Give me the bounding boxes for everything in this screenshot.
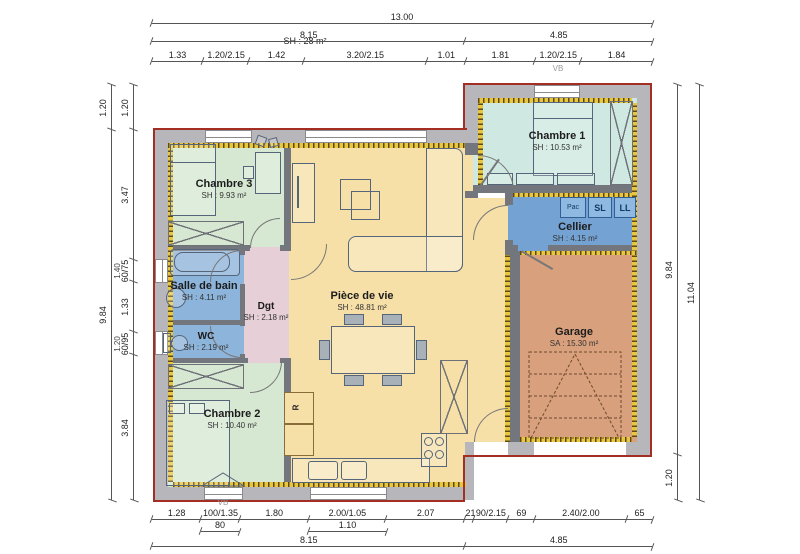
dim-label: 21 <box>465 508 473 518</box>
partition-sdb-wc <box>162 320 240 325</box>
dining-table <box>331 326 415 374</box>
dim-segment: 1.81 <box>466 48 536 62</box>
dim-label: 8.15 <box>152 30 465 40</box>
kitchen-sink-a <box>308 461 338 480</box>
wall-step-top <box>465 85 478 143</box>
dim-label: 1.42 <box>249 50 304 60</box>
dim-label: 4.85 <box>465 535 652 545</box>
dim-segment: 1.33 <box>152 48 203 62</box>
sofa-horizontal <box>348 236 463 272</box>
entry-door-opening <box>474 442 508 455</box>
dim-segment: 1.20/2.15 <box>535 48 581 62</box>
dim-segment: 1.80 <box>240 506 309 520</box>
label-chambre3: Chambre 3 SH : 9.93 m² <box>169 178 279 200</box>
bed-chambre1-pillow-line <box>534 118 592 119</box>
room-area: SH : 2.18 m² <box>236 313 296 322</box>
wardrobe-chambre3 <box>168 221 244 246</box>
dim-segment: 1.28 <box>152 506 201 520</box>
floor-plan-canvas: R Pac SL LL Chambre 3 SH : 9.93 m² Chamb… <box>0 0 800 554</box>
dim-label: 65 <box>627 508 652 518</box>
kitchen-tall-cabinet <box>440 360 468 434</box>
dining-chair-bottom-b <box>382 375 402 386</box>
window-chambre1-top <box>534 85 580 98</box>
dim-segment: 1.01 <box>427 48 466 62</box>
dresser-chambre1-c <box>557 173 595 185</box>
dim-label: 1.80 <box>240 508 309 518</box>
room-area: SH : 2.19 m² <box>151 343 261 352</box>
dim-label: 1.84 <box>581 50 652 60</box>
dim-row-bottom-sub-110: 1.10 <box>309 518 386 532</box>
dim-segment: 3.20/2.15 <box>304 48 427 62</box>
label-piece-de-vie: Pièce de vie SH : 48.81 m² <box>307 290 417 312</box>
dim-label: 9.84 <box>664 261 674 279</box>
window-living-bay <box>305 130 427 143</box>
insulation-garage-top <box>520 251 637 255</box>
dim-row-bottom-sections: 8.15 4.85 <box>152 533 652 547</box>
wardrobe-chambre1 <box>610 101 633 185</box>
dim-segment: 8.15 <box>152 28 465 42</box>
dim-label: 1.20 <box>98 99 108 117</box>
bed-chambre3-pillow-line <box>171 162 215 163</box>
label-dgt: Dgt SH : 2.18 m² <box>236 301 296 322</box>
dim-segment: 3.84 <box>118 355 134 500</box>
dining-chair-top-b <box>382 314 402 325</box>
dim-row-top-details: 1.33 1.20/2.15 1.42 3.20/2.15 1.01 1.81 … <box>152 48 652 62</box>
dining-chair-left <box>319 340 330 360</box>
appliance-pac: Pac <box>560 197 586 218</box>
label-cellier: Cellier SH : 4.15 m² <box>520 221 630 243</box>
dim-label: 8.15 <box>152 535 465 545</box>
dim-segment: 1.33 <box>118 282 134 332</box>
dim-segment: 4.85 <box>465 28 652 42</box>
partition-cellier-left-a <box>505 193 513 205</box>
label-wc: WC SH : 2.19 m² <box>151 331 261 352</box>
dim-segment: 9.84 <box>662 85 678 455</box>
dim-sublabel: 1.40 <box>113 263 122 279</box>
room-name: Pièce de vie <box>307 290 417 303</box>
dim-col-left-inner: 1.20 3.47 60/751.40 1.33 60/951.20 3.84 <box>118 85 134 500</box>
dresser-chambre1-b <box>516 173 554 185</box>
room-name: Salle de bain <box>149 280 259 293</box>
partition-wc-bottom <box>162 358 248 363</box>
dim-segment: 1.20/2.15 <box>203 48 249 62</box>
dim-segment: 2.40/2.00 <box>535 506 627 520</box>
dim-label: 1.33 <box>120 298 130 316</box>
dim-label: 2.40/2.00 <box>535 508 627 518</box>
dim-col-left-outer: 1.20 9.84 <box>96 85 112 500</box>
dim-label: 1.28 <box>152 508 201 518</box>
garage-door-icon <box>527 350 623 440</box>
room-name: Cellier <box>520 221 630 234</box>
appliance-sl-label: SL <box>594 203 606 213</box>
dim-segment: 60/951.20 <box>118 332 134 355</box>
label-garage: Garage SA : 15.30 m² <box>519 326 629 348</box>
dim-segment: 1.10 <box>309 518 386 532</box>
outline-notch <box>463 455 465 502</box>
tv-unit <box>292 163 315 223</box>
dim-label: 1.20/2.15 <box>535 50 581 60</box>
dim-row-top-sections: 8.15 4.85 <box>152 28 652 42</box>
dim-label: 1.20/2.15 <box>203 50 249 60</box>
partition-chambre1-left-a <box>465 143 478 155</box>
dim-segment: 60/751.40 <box>118 260 134 282</box>
kitchen-sink-b <box>341 461 367 480</box>
label-sdb: Salle de bain SH : 4.11 m² <box>149 280 259 302</box>
dim-segment: 13.00 <box>152 10 652 24</box>
dim-segment: 65 <box>627 506 652 520</box>
dim-sublabel: 1.20 <box>113 336 122 352</box>
hob-burner-2 <box>435 437 444 446</box>
tv-screen <box>297 176 299 208</box>
dim-segment: 9.84 <box>96 130 112 500</box>
dim-segment: 1.84 <box>581 48 652 62</box>
hob-burner-1 <box>424 437 433 446</box>
dim-label: 3.84 <box>120 419 130 437</box>
dim-row-top-total: 13.00 <box>152 10 652 24</box>
dim-label: 3.20/2.15 <box>304 50 427 60</box>
hob-burner-3 <box>424 450 433 459</box>
dim-label: 90/2.15 <box>474 508 509 518</box>
dining-chair-bottom-a <box>344 375 364 386</box>
dim-segment: 8.15 <box>152 533 465 547</box>
coffee-table-b <box>351 191 380 220</box>
room-name: WC <box>151 331 261 343</box>
fridge-label: R <box>291 405 300 411</box>
dining-chair-right <box>416 340 427 360</box>
dim-label: 1.01 <box>427 50 466 60</box>
room-name: Dgt <box>236 301 296 313</box>
outline-step-top <box>463 85 465 130</box>
dim-label: 1.20 <box>120 99 130 117</box>
kitchen-cabinet-low <box>284 424 314 456</box>
dim-label: 80 <box>201 520 239 530</box>
dim-segment: 2.07 <box>386 506 466 520</box>
dim-col-right-outer: 11.04 <box>684 85 700 500</box>
dining-chair-top-a <box>344 314 364 325</box>
dim-label: 2.00/1.05 <box>309 508 386 518</box>
garage-door-opening <box>534 442 626 455</box>
dim-label: 3.47 <box>120 186 130 204</box>
dim-segment: 69 <box>508 506 535 520</box>
dim-segment: 11.04 <box>684 85 700 500</box>
room-area: SH : 48.81 m² <box>307 303 417 312</box>
outline-bottom-left <box>153 500 465 502</box>
dim-label: 1.33 <box>152 50 203 60</box>
window-chambre3-top <box>205 130 252 143</box>
dim-segment: 80 <box>201 518 239 532</box>
dim-label: 2.07 <box>386 508 466 518</box>
room-name: Chambre 2 <box>177 408 287 421</box>
room-area: SH : 9.93 m² <box>169 191 279 200</box>
dim-label: 9.84 <box>98 306 108 324</box>
hob-burner-4 <box>435 450 444 459</box>
wardrobe-chambre2 <box>168 364 244 389</box>
dim-segment: 3.47 <box>118 130 134 260</box>
dim-segment: 4.85 <box>465 533 652 547</box>
outline-left <box>153 128 155 502</box>
dim-label: 4.85 <box>465 30 652 40</box>
room-area: SH : 10.53 m² <box>502 143 612 152</box>
dim-label: 1.20 <box>664 469 674 487</box>
dim-label: 11.04 <box>686 282 696 304</box>
dim-label: 1.81 <box>466 50 536 60</box>
room-name: Chambre 3 <box>169 178 279 191</box>
dim-col-right-inner: 9.84 1.20 <box>662 85 678 500</box>
label-chambre1: Chambre 1 SH : 10.53 m² <box>502 130 612 152</box>
dim-segment: 90/2.15 <box>474 506 509 520</box>
partition-chambre3-bottom-stub <box>280 245 291 251</box>
label-chambre2: Chambre 2 SH : 10.40 m² <box>177 408 287 430</box>
appliance-pac-label: Pac <box>567 204 579 211</box>
appliance-ll-label: LL <box>620 203 631 213</box>
room-name: Garage <box>519 326 629 339</box>
window-swing-icon <box>200 471 246 487</box>
dim-label: 1.10 <box>309 520 386 530</box>
room-area: SA : 15.30 m² <box>519 339 629 348</box>
outline-garage-bottom <box>465 455 652 457</box>
dim-row-bottom-sub-80: 80 <box>201 518 239 532</box>
wall-right <box>637 85 650 455</box>
dim-label: 69 <box>508 508 535 518</box>
room-area: SH : 10.40 m² <box>177 421 287 430</box>
dim-segment: 1.20 <box>96 85 112 130</box>
room-name: Chambre 1 <box>502 130 612 143</box>
outline-right <box>650 83 652 457</box>
appliance-ll: LL <box>614 197 636 218</box>
dim-segment: 1.20 <box>662 455 678 500</box>
window-kitchen-bottom <box>310 487 387 500</box>
dim-label: 13.00 <box>152 12 652 22</box>
dim-label: 100/1.35 <box>201 508 239 518</box>
partition-chambre3-living <box>284 137 291 250</box>
wall-step-bottom <box>465 442 474 500</box>
label-vb-top: VB <box>538 64 578 73</box>
dim-segment: 1.20 <box>118 85 134 130</box>
room-area: SH : 4.15 m² <box>520 234 630 243</box>
dim-segment: 1.42 <box>249 48 304 62</box>
appliance-sl: SL <box>588 197 612 218</box>
